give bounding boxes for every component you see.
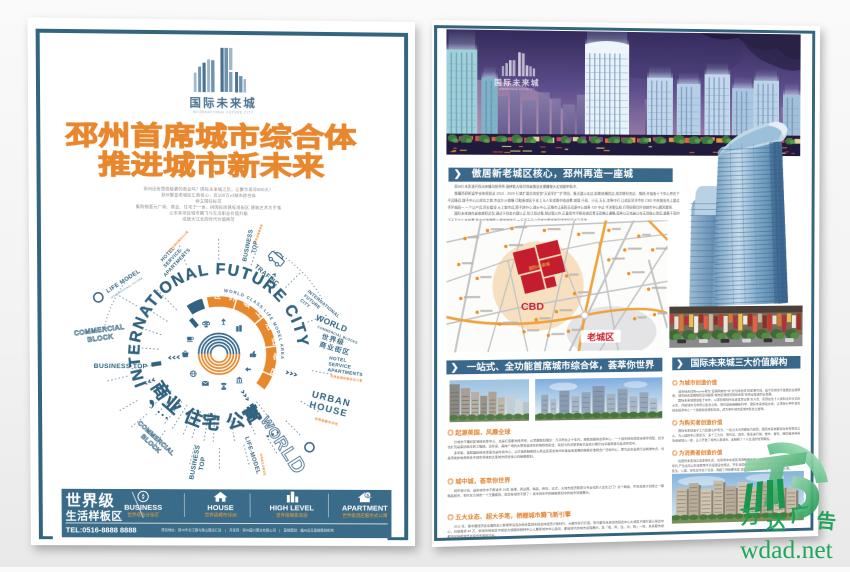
svg-text:TOP: TOP — [198, 456, 207, 471]
svg-text:世界级酒店服务式公寓: 世界级酒店服务式公寓 — [342, 512, 388, 519]
svg-text:世界级都市华宅: 世界级都市华宅 — [314, 416, 339, 427]
svg-text:INTERNATIONAL FUTURE CITY: INTERNATIONAL FUTURE CITY — [499, 88, 535, 91]
svg-text:BUSINESS: BUSINESS — [124, 503, 162, 512]
svg-text:达: 达 — [766, 511, 788, 535]
svg-text:HIGH LEVEL: HIGH LEVEL — [270, 503, 315, 512]
svg-text:INTERNATIONAL FUTURE CITY: INTERNATIONAL FUTURE CITY — [193, 110, 254, 115]
svg-text:万: 万 — [739, 505, 761, 529]
svg-text:LIFE-MODEL: LIFE-MODEL — [243, 436, 261, 475]
svg-text:TEL:0516-8888 8888: TEL:0516-8888 8888 — [66, 525, 137, 534]
svg-text:BUSINESS TOP: BUSINESS TOP — [94, 363, 148, 370]
svg-text:世界级: 世界级 — [66, 491, 115, 510]
svg-text:国际未来城: 国际未来城 — [189, 96, 256, 111]
svg-text:告: 告 — [816, 509, 837, 534]
svg-text:广: 广 — [789, 502, 811, 527]
svg-text:老城区: 老城区 — [586, 332, 615, 343]
svg-text:国际未来城: 国际未来城 — [494, 77, 540, 87]
svg-text:世界级瞰景高层: 世界级瞰景高层 — [276, 512, 308, 519]
svg-text:项目地址：邳州市长江路与珠山路交汇处 | 开发商：邳州国兴置: 项目地址：邳州市长江路与珠山路交汇处 | 开发商：邳州国兴置业有限公司 | 营销… — [161, 527, 334, 532]
svg-text:APARTMENT: APARTMENT — [342, 504, 388, 513]
svg-text:CBD: CBD — [521, 301, 544, 313]
svg-text:HOUSE: HOUSE — [207, 503, 233, 512]
svg-text:世界级都市绿洲: 世界级都市绿洲 — [205, 512, 237, 519]
svg-text:生活样板区: 生活样板区 — [66, 509, 123, 523]
svg-text:wdad.net: wdad.net — [740, 535, 833, 564]
svg-text:世界级商业街区: 世界级商业街区 — [127, 511, 159, 518]
svg-text:世界级瞰景高层: 世界级瞰景高层 — [253, 223, 264, 243]
